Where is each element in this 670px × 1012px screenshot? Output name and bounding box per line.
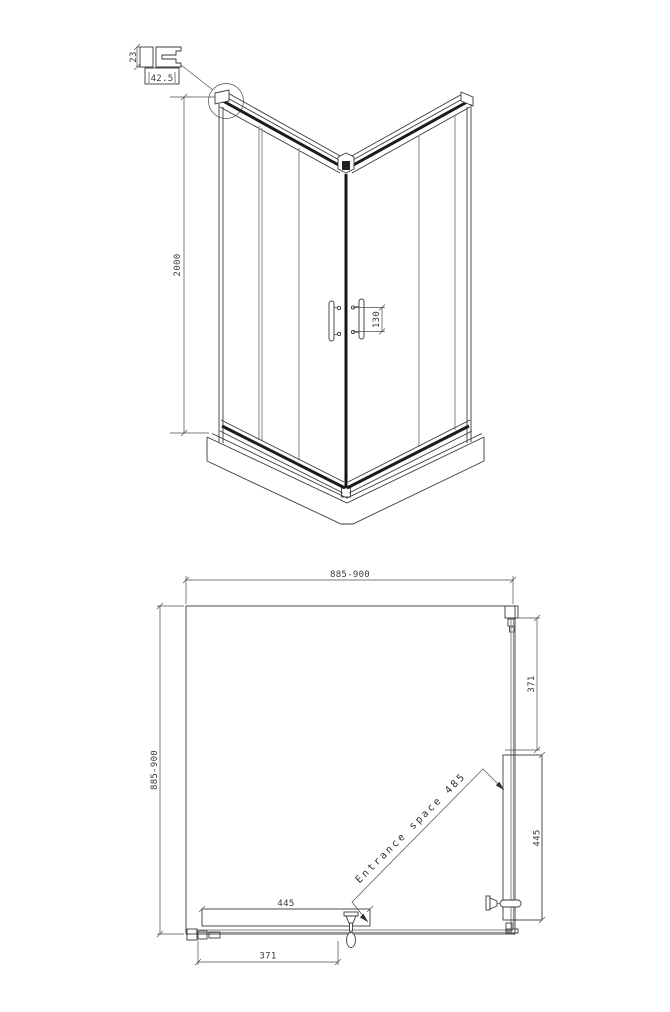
dim-overall-width: 885-900 bbox=[183, 570, 516, 604]
top-rail-left bbox=[220, 92, 344, 173]
front-isometric-view: 2000 bbox=[170, 90, 484, 524]
dim-right-fixed-panel: 371 bbox=[505, 615, 540, 753]
rail-end-cap-left bbox=[215, 90, 229, 104]
bottom-rail-right bbox=[347, 420, 472, 493]
dim-bottom-fixed-label: 371 bbox=[259, 952, 276, 962]
door-handle-left bbox=[329, 301, 341, 341]
entrance-annotation-label: Entrance space 485 bbox=[354, 771, 469, 886]
dim-right-door-panel: 445 bbox=[533, 752, 546, 923]
technical-drawing-page: 23 42.5 2000 bbox=[0, 0, 670, 1012]
detail-leader-line bbox=[181, 65, 213, 90]
plan-view: 885-900 885-900 371 445 bbox=[150, 570, 545, 965]
shower-enclosure-drawing: 23 42.5 2000 bbox=[0, 0, 670, 1012]
bottom-fixed-glass bbox=[196, 930, 512, 933]
profile-detail-callout: 23 42.5 bbox=[129, 44, 244, 119]
plan-handle-right-door bbox=[486, 896, 521, 910]
door-handle-right bbox=[351, 299, 364, 339]
dim-handle-spacing-label: 130 bbox=[372, 311, 382, 328]
right-fixed-glass bbox=[511, 619, 514, 929]
dim-right-door-label: 445 bbox=[533, 829, 543, 846]
dim-overall-depth-label: 885-900 bbox=[150, 750, 160, 790]
corner-profile-bottom-right bbox=[506, 923, 518, 933]
dim-bottom-door-label: 445 bbox=[277, 899, 294, 909]
entrance-arrow-bottom bbox=[360, 914, 368, 922]
dim-profile-height-label: 23 bbox=[129, 51, 139, 62]
dim-overall-height: 2000 bbox=[170, 94, 219, 436]
corner-top-cap-core bbox=[342, 161, 350, 170]
plan-outline bbox=[186, 606, 515, 934]
entrance-annotation: Entrance space 485 bbox=[352, 769, 504, 922]
dim-bottom-door-panel: 445 bbox=[199, 899, 373, 912]
dim-right-fixed-label: 371 bbox=[527, 675, 537, 692]
top-rail-right bbox=[348, 93, 470, 173]
profile-left-block bbox=[140, 47, 153, 67]
dim-profile-width: 42.5 bbox=[149, 72, 175, 84]
dim-handle-spacing: 130 bbox=[353, 305, 385, 335]
dim-overall-height-label: 2000 bbox=[173, 254, 183, 277]
dim-profile-height: 23 bbox=[129, 44, 141, 70]
dim-overall-depth: 885-900 bbox=[150, 603, 184, 937]
right-glass-wall bbox=[419, 104, 471, 447]
dim-bottom-fixed-panel: 371 bbox=[195, 941, 341, 965]
profile-channel bbox=[156, 47, 181, 67]
left-glass-wall bbox=[219, 104, 299, 460]
wall-profile-bottom-left bbox=[187, 929, 220, 940]
bottom-sliding-door bbox=[202, 909, 370, 926]
dim-overall-width-label: 885-900 bbox=[330, 570, 370, 580]
dim-profile-width-label: 42.5 bbox=[151, 74, 174, 84]
bottom-rail-left bbox=[220, 420, 345, 493]
